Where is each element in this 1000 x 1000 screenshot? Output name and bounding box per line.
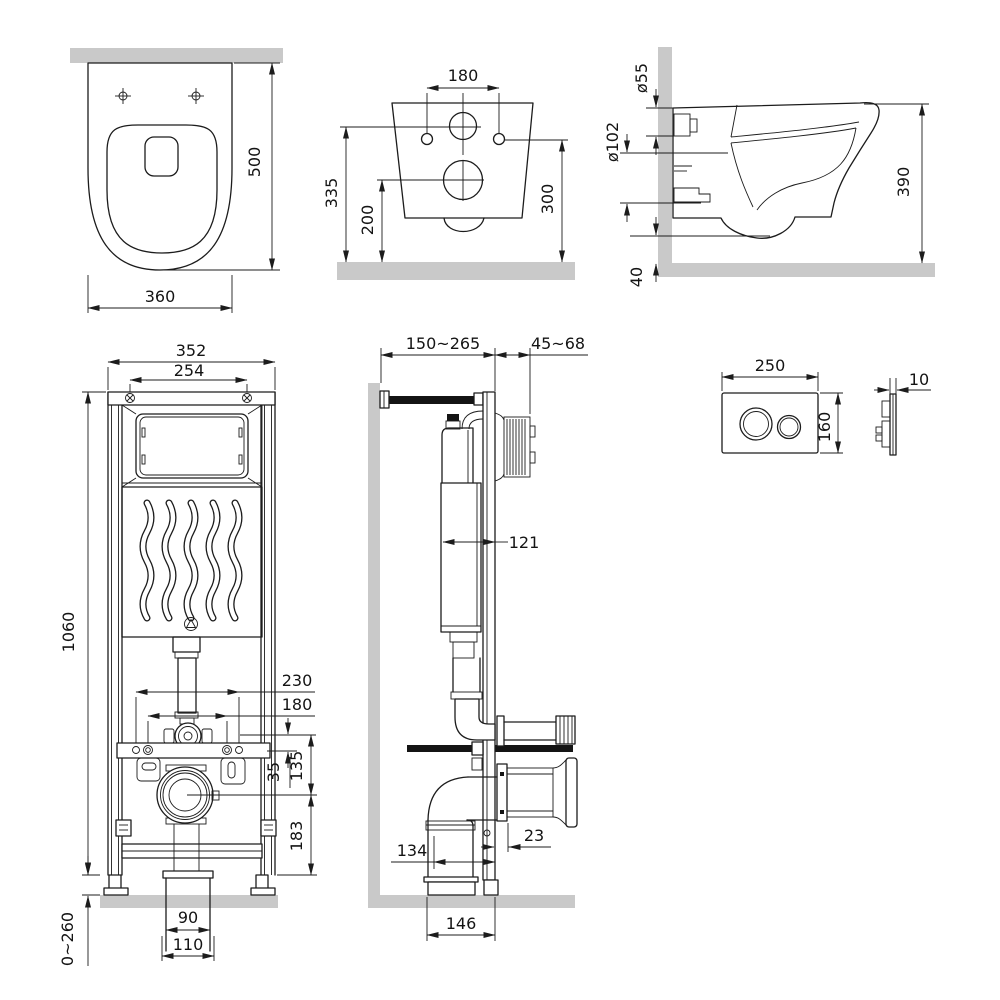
dim-screw-spacing: 254 xyxy=(174,361,205,380)
dim-depth-range: 150~265 xyxy=(406,334,480,353)
dim-plate-thickness: 10 xyxy=(909,370,929,389)
flush-pipe-front xyxy=(173,637,200,724)
floor-section xyxy=(368,895,575,908)
inspection-window xyxy=(122,405,262,487)
dim-floor-gap: 40 xyxy=(627,267,646,287)
dim-drain-depth: 146 xyxy=(446,914,477,933)
pipe-clip xyxy=(261,820,276,836)
frame-foot-side xyxy=(484,880,498,895)
stud-rail xyxy=(117,743,270,758)
fixing-hole xyxy=(422,134,433,145)
rail-step-block xyxy=(472,758,482,770)
outlet-connector-side xyxy=(497,758,577,827)
dim-outlet-to-base: 183 xyxy=(287,821,306,852)
flush-button-small xyxy=(778,416,801,439)
adjustable-leg xyxy=(251,875,275,895)
flush-button-large xyxy=(740,408,772,440)
floor-section xyxy=(100,895,278,908)
floor-section xyxy=(658,263,935,277)
mounting-bracket xyxy=(137,758,160,781)
inlet-connector xyxy=(674,114,690,136)
flush-plate-view: 250 160 10 xyxy=(722,356,931,455)
floor-section xyxy=(337,262,575,280)
dim-toilet-depth: 500 xyxy=(245,147,264,178)
dim-drain-outer: 110 xyxy=(173,935,204,954)
frame-front-view: 352 254 1060 0~260 230 180 35 135 183 90 xyxy=(58,341,317,966)
dim-stud-outer: 230 xyxy=(282,671,313,690)
dim-inlet-diameter: ø55 xyxy=(632,63,651,93)
frame-rail-side xyxy=(483,392,495,880)
dim-flange-depth: 23 xyxy=(524,826,544,845)
dimension-drawing: 500 360 180 335 200 300 xyxy=(0,0,1000,1000)
dim-fixing-height: 300 xyxy=(538,184,557,215)
dim-drain-inner: 90 xyxy=(178,908,198,927)
flush-plate-side xyxy=(876,394,896,455)
dim-cistern-depth: 121 xyxy=(509,533,540,552)
flush-pipe-side xyxy=(451,658,575,755)
wall-section xyxy=(70,48,283,63)
toilet-side-view: ø55 ø102 390 40 xyxy=(603,47,935,287)
bowl-outline xyxy=(88,63,232,270)
mount-hole-marker xyxy=(115,88,131,104)
bowl-side-outline xyxy=(673,103,879,239)
dim-outlet-depth: 134 xyxy=(397,841,428,860)
cistern-panel xyxy=(122,483,262,637)
dim-frame-height: 1060 xyxy=(59,612,78,653)
dim-plate-width: 250 xyxy=(755,356,786,375)
dim-hole-spacing: 180 xyxy=(448,66,479,85)
brand-logo-icon xyxy=(185,618,198,631)
dim-frame-width: 352 xyxy=(176,341,207,360)
fixing-hole xyxy=(494,134,505,145)
mount-hole-marker xyxy=(188,88,204,104)
dim-plate-height: 160 xyxy=(815,412,834,443)
seat-outline xyxy=(107,125,217,253)
dim-finish-range: 45~68 xyxy=(531,334,585,353)
trap-bump xyxy=(444,218,484,232)
toilet-top-view: 500 360 xyxy=(70,48,283,313)
adjustable-leg xyxy=(104,875,128,895)
flush-plate-housing xyxy=(495,413,535,481)
mounting-bracket xyxy=(221,758,245,784)
dim-outlet-diameter: ø102 xyxy=(603,122,622,162)
dim-inlet-height: 335 xyxy=(322,178,341,209)
flush-opening xyxy=(145,137,178,176)
dim-bowl-height: 390 xyxy=(894,167,913,198)
frame-side-view: 150~265 45~68 121 134 23 146 xyxy=(368,334,588,941)
wall-section xyxy=(658,47,672,277)
toilet-rear-view: 180 335 200 300 xyxy=(322,66,575,280)
flush-plate-front xyxy=(722,393,818,453)
dim-leg-range: 0~260 xyxy=(58,912,77,966)
cistern-side xyxy=(441,411,483,658)
wall-section xyxy=(368,383,380,908)
dim-stud-inner: 180 xyxy=(282,695,313,714)
dim-toilet-width: 360 xyxy=(145,287,176,306)
outlet-connector xyxy=(674,188,710,202)
technical-drawing-canvas: 500 360 180 335 200 300 xyxy=(0,0,1000,1000)
frame-top-bar xyxy=(108,392,275,405)
dim-offset-small: 35 xyxy=(264,762,283,782)
wall-anchor-rod xyxy=(380,391,483,408)
dim-outlet-height: 200 xyxy=(358,205,377,236)
pipe-clip xyxy=(116,820,131,836)
dim-rail-to-outlet: 135 xyxy=(287,751,306,782)
seat-hinge-line xyxy=(731,105,737,137)
insulation-waves xyxy=(143,503,239,618)
